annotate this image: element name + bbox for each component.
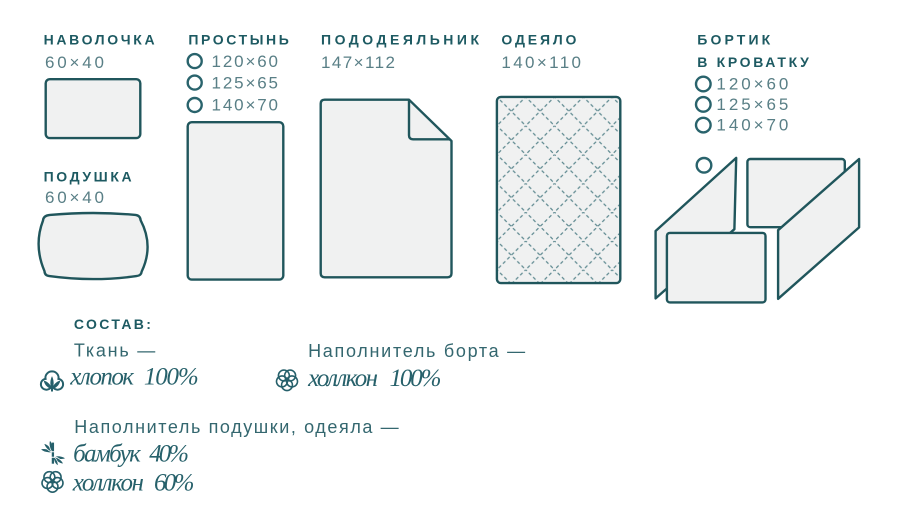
svg-text:НАВОЛОЧКА: НАВОЛОЧКА <box>44 31 155 47</box>
svg-text:холлкон60%: холлкон60% <box>72 469 195 496</box>
svg-text:147×112: 147×112 <box>321 53 395 72</box>
svg-text:Наполнитель подушки, одеяла —: Наполнитель подушки, одеяла — <box>74 417 398 437</box>
svg-text:Ткань —: Ткань — <box>74 341 155 361</box>
svg-text:ПОДУШКА: ПОДУШКА <box>44 168 132 184</box>
svg-text:бамбук40%: бамбук40% <box>73 441 189 468</box>
svg-text:Наполнитель борта —: Наполнитель борта — <box>308 341 525 361</box>
svg-text:60×40: 60×40 <box>45 188 104 207</box>
svg-text:60×40: 60×40 <box>45 53 104 72</box>
svg-text:холлкон100%: холлкон100% <box>307 365 441 392</box>
svg-text:ПРОСТЫНЬ: ПРОСТЫНЬ <box>188 31 288 47</box>
svg-text:140×110: 140×110 <box>501 53 581 72</box>
svg-text:СОСТАВ:: СОСТАВ: <box>74 316 151 332</box>
